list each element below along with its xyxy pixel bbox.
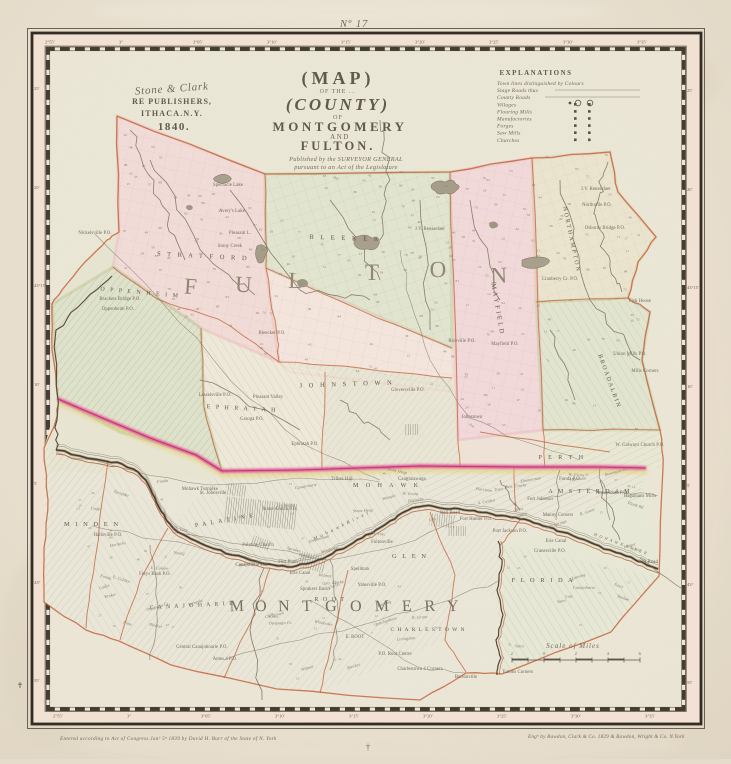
svg-text:3°: 3° bbox=[119, 40, 123, 45]
svg-text:25': 25' bbox=[34, 86, 40, 91]
svg-text:✝: ✝ bbox=[17, 681, 24, 690]
svg-text:3°05': 3°05' bbox=[201, 714, 211, 719]
svg-text:3°30': 3°30' bbox=[563, 40, 573, 45]
svg-text:3°25': 3°25' bbox=[497, 714, 507, 719]
svg-text:†: † bbox=[366, 742, 371, 752]
svg-text:3°05': 3°05' bbox=[193, 40, 203, 45]
svg-text:25': 25' bbox=[687, 88, 693, 93]
svg-text:3°20': 3°20' bbox=[415, 40, 425, 45]
svg-text:3°10': 3°10' bbox=[275, 714, 285, 719]
svg-text:43°: 43° bbox=[687, 582, 694, 587]
svg-text:43°: 43° bbox=[34, 580, 41, 585]
svg-text:20': 20' bbox=[687, 187, 693, 192]
svg-text:2°55': 2°55' bbox=[45, 40, 55, 45]
svg-text:2°55': 2°55' bbox=[53, 714, 63, 719]
svg-text:3°: 3° bbox=[127, 714, 131, 719]
svg-text:43°15': 43°15' bbox=[687, 285, 699, 290]
svg-text:3°15': 3°15' bbox=[349, 714, 359, 719]
svg-text:5': 5' bbox=[34, 481, 37, 486]
svg-text:3°20': 3°20' bbox=[423, 714, 433, 719]
svg-text:20': 20' bbox=[34, 185, 40, 190]
svg-text:5': 5' bbox=[687, 483, 690, 488]
svg-text:3°30': 3°30' bbox=[571, 714, 581, 719]
svg-text:55': 55' bbox=[687, 680, 693, 685]
svg-text:55': 55' bbox=[34, 678, 40, 683]
svg-text:3°35': 3°35' bbox=[637, 40, 647, 45]
svg-text:3°15': 3°15' bbox=[341, 40, 351, 45]
svg-text:10': 10' bbox=[687, 384, 693, 389]
svg-text:3°35': 3°35' bbox=[645, 714, 655, 719]
svg-text:Entered according to Act o: Entered according to Act of Congress Jan… bbox=[59, 735, 277, 742]
svg-text:Engⁿ by Rawdon, Clark & Co.: Engⁿ by Rawdon, Clark & Co. 1829 & Rawdo… bbox=[527, 734, 685, 740]
svg-text:10': 10' bbox=[34, 382, 40, 387]
svg-text:43°15': 43°15' bbox=[34, 283, 46, 288]
svg-text:3°25': 3°25' bbox=[489, 40, 499, 45]
svg-text:3°10': 3°10' bbox=[267, 40, 277, 45]
